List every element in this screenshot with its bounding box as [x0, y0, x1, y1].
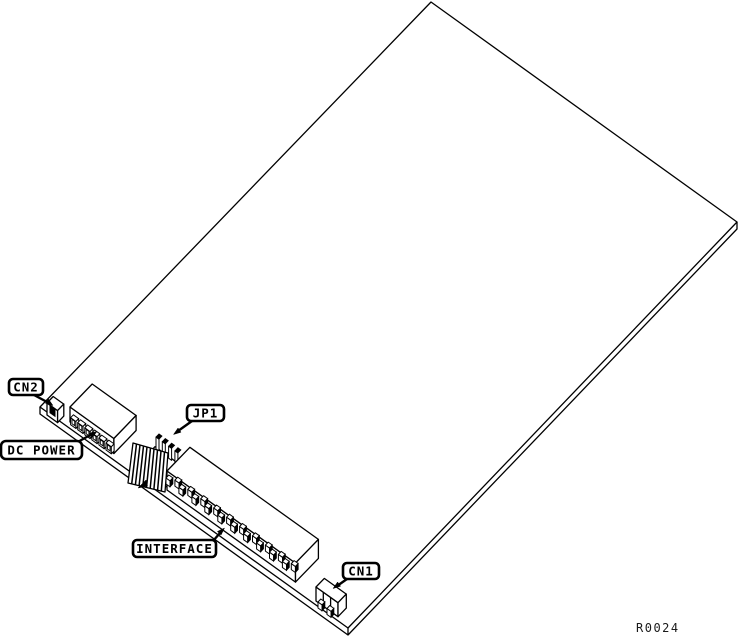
interface-pin: [282, 559, 289, 571]
cn1-pin: [318, 599, 325, 611]
callout-interface-label: INTERFACE: [136, 541, 213, 556]
callout-cn1-label: CN1: [348, 564, 374, 579]
callout-dc-power-label: DC POWER: [7, 443, 75, 458]
pcb-isometric-diagram: CN2 DC POWER JP1 INTERFACE CN1 R0024: [0, 0, 740, 640]
callout-cn2: CN2: [9, 379, 53, 406]
callout-interface: INTERFACE: [133, 528, 225, 557]
figure-canvas: CN2 DC POWER JP1 INTERFACE CN1 R0024: [0, 0, 740, 640]
cn1-pin: [327, 606, 334, 618]
board-outline: [40, 2, 737, 628]
interface-pin: [291, 561, 298, 573]
interface-pin: [179, 484, 186, 496]
interface-pin: [244, 531, 251, 543]
interface-pin: [205, 503, 212, 515]
figure-reference-code: R0024: [636, 621, 680, 635]
callout-jp1-label: JP1: [193, 406, 219, 421]
interface-pin: [218, 512, 225, 524]
callout-cn2-label: CN2: [13, 380, 39, 395]
interface-pin: [166, 475, 173, 487]
interface-pin: [192, 494, 199, 506]
interface-pin: [257, 540, 264, 552]
interface-pin: [270, 549, 277, 561]
interface-pin: [231, 521, 238, 533]
